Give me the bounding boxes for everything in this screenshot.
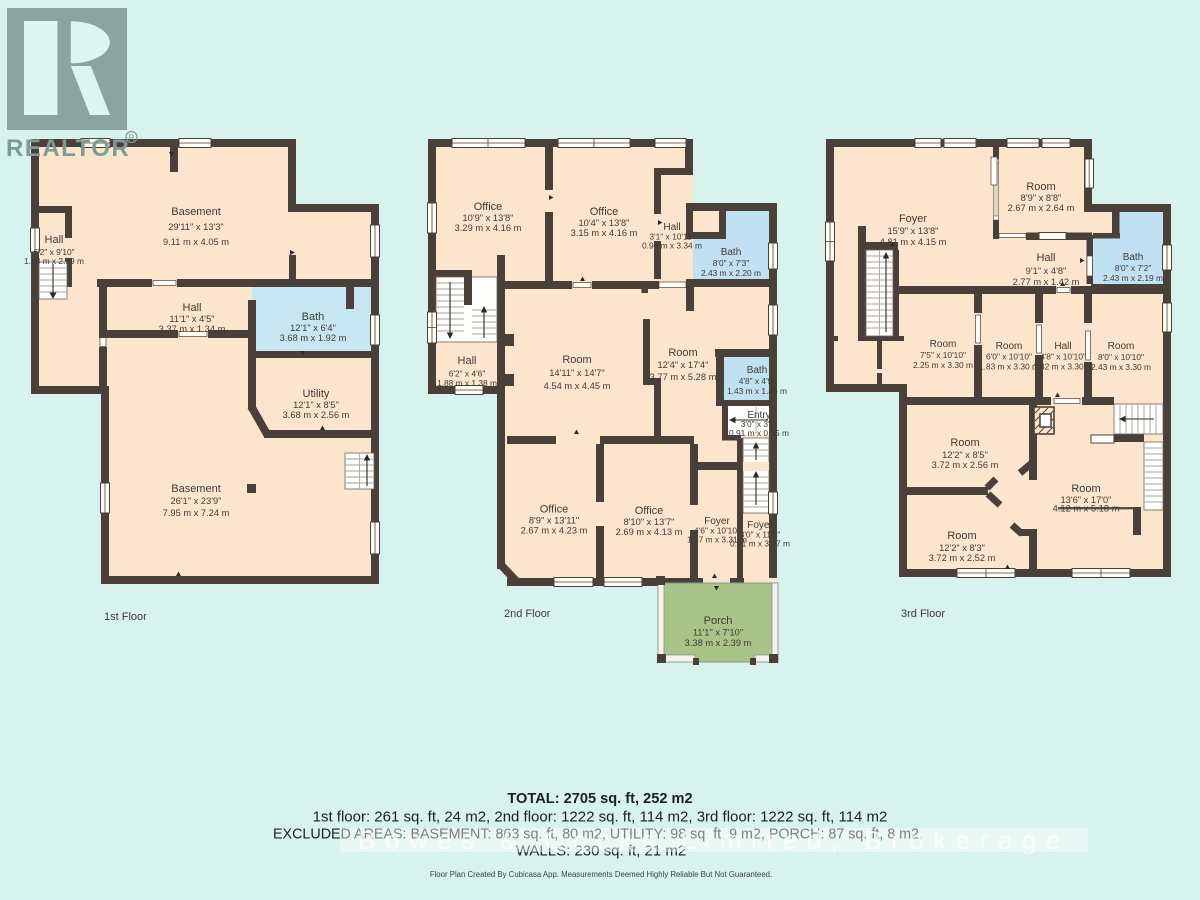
svg-text:Office: Office xyxy=(590,206,619,218)
svg-text:3.72 m x 2.52 m: 3.72 m x 2.52 m xyxy=(929,553,996,563)
svg-text:3.72 m x 2.56 m: 3.72 m x 2.56 m xyxy=(932,460,999,470)
svg-text:Bath: Bath xyxy=(302,311,325,323)
svg-text:Room: Room xyxy=(950,437,979,449)
svg-text:3.37 m x 1.34 m: 3.37 m x 1.34 m xyxy=(159,324,226,334)
svg-text:3rd Floor: 3rd Floor xyxy=(901,608,945,620)
svg-text:2.43 m x 2.20 m: 2.43 m x 2.20 m xyxy=(701,268,761,278)
svg-text:2.77 m x 1.42 m: 2.77 m x 1.42 m xyxy=(1013,277,1080,287)
svg-text:2.25 m x 3.30 m: 2.25 m x 3.30 m xyxy=(913,360,973,370)
svg-text:12'2" x 8'5": 12'2" x 8'5" xyxy=(942,450,988,460)
svg-text:2.67 m x 4.23 m: 2.67 m x 4.23 m xyxy=(521,526,588,536)
svg-text:12'4" x 17'4": 12'4" x 17'4" xyxy=(658,360,709,370)
svg-text:Room: Room xyxy=(1026,181,1055,193)
svg-text:0.91 m x 0.95 m: 0.91 m x 0.95 m xyxy=(729,428,789,438)
svg-text:8'0" x 7'2": 8'0" x 7'2" xyxy=(1115,263,1152,273)
svg-text:Office: Office xyxy=(540,504,569,516)
svg-text:11'1" x 4'5": 11'1" x 4'5" xyxy=(169,314,214,324)
svg-text:Room: Room xyxy=(947,530,976,542)
svg-text:2.43 m x 2.19 m: 2.43 m x 2.19 m xyxy=(1103,273,1163,283)
svg-text:Bowes & Cocks Limited, Brokera: Bowes & Cocks Limited, Brokerage xyxy=(358,825,1070,855)
svg-text:11'1" x 7'10": 11'1" x 7'10" xyxy=(693,628,743,638)
svg-text:Hall: Hall xyxy=(458,355,477,367)
svg-text:Floor Plan Created By Cubicasa: Floor Plan Created By Cubicasa App. Meas… xyxy=(430,870,772,879)
svg-text:Office: Office xyxy=(635,505,664,517)
svg-text:7'5" x 10'10": 7'5" x 10'10" xyxy=(920,350,966,360)
svg-text:1st floor: 261 sq. ft, 24 m2,: 1st floor: 261 sq. ft, 24 m2, 2nd floor:… xyxy=(313,809,888,826)
svg-text:4.12 m x 5.18 m: 4.12 m x 5.18 m xyxy=(1053,504,1120,514)
svg-text:3.15 m x 4.16 m: 3.15 m x 4.16 m xyxy=(571,228,638,238)
svg-text:1.88 m x 2.99 m: 1.88 m x 2.99 m xyxy=(24,256,84,266)
svg-text:Room: Room xyxy=(562,354,591,366)
svg-text:10'4" x 13'8": 10'4" x 13'8" xyxy=(579,218,630,228)
svg-text:8'10" x 13'7": 8'10" x 13'7" xyxy=(624,517,675,527)
svg-text:9'1" x 4'8": 9'1" x 4'8" xyxy=(1026,266,1067,276)
svg-text:Room: Room xyxy=(1108,341,1135,352)
svg-text:2.43 m x 3.30 m: 2.43 m x 3.30 m xyxy=(1091,362,1151,372)
svg-text:14'11" x 14'7": 14'11" x 14'7" xyxy=(549,368,604,378)
svg-text:1.88 m x 1.38 m: 1.88 m x 1.38 m xyxy=(437,378,497,388)
svg-text:2nd Floor: 2nd Floor xyxy=(504,608,551,620)
svg-text:R: R xyxy=(129,134,135,143)
svg-text:3.29 m x 4.16 m: 3.29 m x 4.16 m xyxy=(455,223,522,233)
svg-text:4.81 m x 4.15 m: 4.81 m x 4.15 m xyxy=(880,237,947,247)
svg-text:Basement: Basement xyxy=(171,206,221,218)
svg-text:12'1" x 6'4": 12'1" x 6'4" xyxy=(290,323,336,333)
svg-text:4'8" x 4'9": 4'8" x 4'9" xyxy=(739,376,776,386)
svg-text:8'0" x 10'10": 8'0" x 10'10" xyxy=(1098,352,1144,362)
svg-text:TOTAL: 2705 sq. ft, 252 m2: TOTAL: 2705 sq. ft, 252 m2 xyxy=(507,791,692,807)
svg-text:Porch: Porch xyxy=(704,615,733,627)
svg-text:8'9" x 8'8": 8'9" x 8'8" xyxy=(1021,193,1062,203)
svg-text:2.67 m x 2.64 m: 2.67 m x 2.64 m xyxy=(1008,203,1075,213)
svg-text:Utility: Utility xyxy=(303,388,330,400)
svg-text:Office: Office xyxy=(474,201,503,213)
svg-text:9.11 m x 4.05 m: 9.11 m x 4.05 m xyxy=(163,237,229,247)
svg-text:1.43 m x 1.46 m: 1.43 m x 1.46 m xyxy=(727,386,787,396)
svg-text:1st Floor: 1st Floor xyxy=(104,611,147,623)
svg-text:0.91 m x 3.47 m: 0.91 m x 3.47 m xyxy=(730,539,790,549)
svg-text:1.83 m x 3.30 m: 1.83 m x 3.30 m xyxy=(979,362,1039,372)
svg-text:Hall: Hall xyxy=(183,302,202,314)
svg-text:3.68 m x 1.92 m: 3.68 m x 1.92 m xyxy=(280,333,347,343)
svg-text:3.68 m x 2.56 m: 3.68 m x 2.56 m xyxy=(283,410,350,420)
svg-text:8'0" x 7'3": 8'0" x 7'3" xyxy=(713,258,750,268)
svg-text:REALTOR: REALTOR xyxy=(6,135,130,162)
svg-text:10'9" x 13'8": 10'9" x 13'8" xyxy=(463,213,514,223)
svg-text:Room: Room xyxy=(1071,483,1100,495)
svg-text:2.69 m x 4.13 m: 2.69 m x 4.13 m xyxy=(616,527,683,537)
svg-text:3.38 m x 2.39 m: 3.38 m x 2.39 m xyxy=(685,638,752,648)
svg-text:4'8" x 10'10": 4'8" x 10'10" xyxy=(1040,352,1086,362)
svg-text:Bath: Bath xyxy=(1123,252,1144,263)
svg-text:26'1" x 23'9": 26'1" x 23'9" xyxy=(171,496,222,506)
svg-text:7.95 m x 7.24 m: 7.95 m x 7.24 m xyxy=(163,508,230,518)
svg-text:Hall: Hall xyxy=(45,234,64,246)
svg-text:Bath: Bath xyxy=(747,365,768,376)
svg-text:0.94 m x 3.34 m: 0.94 m x 3.34 m xyxy=(642,241,702,251)
svg-text:15'9" x 13'8": 15'9" x 13'8" xyxy=(888,226,939,236)
svg-text:4.54 m x 4.45 m: 4.54 m x 4.45 m xyxy=(544,381,611,391)
svg-text:6'2" x 4'6": 6'2" x 4'6" xyxy=(449,369,486,379)
svg-text:3.77 m x 5.28 m: 3.77 m x 5.28 m xyxy=(650,372,717,382)
svg-text:Room: Room xyxy=(930,339,957,350)
svg-text:Basement: Basement xyxy=(171,483,221,495)
svg-text:Hall: Hall xyxy=(1054,341,1071,352)
svg-text:Room: Room xyxy=(996,341,1023,352)
svg-text:8'9" x 13'11": 8'9" x 13'11" xyxy=(529,516,579,526)
svg-text:29'11" x 13'3": 29'11" x 13'3" xyxy=(168,222,223,232)
svg-text:6'0" x 10'10": 6'0" x 10'10" xyxy=(986,352,1032,362)
svg-text:1.42 m x 3.30 m: 1.42 m x 3.30 m xyxy=(1033,362,1093,372)
svg-text:Room: Room xyxy=(668,347,697,359)
svg-text:12'1" x 8'5": 12'1" x 8'5" xyxy=(293,400,339,410)
svg-text:12'2" x 8'3": 12'2" x 8'3" xyxy=(939,543,985,553)
svg-text:Foyer: Foyer xyxy=(899,213,927,225)
svg-text:Bath: Bath xyxy=(721,247,742,258)
svg-text:Hall: Hall xyxy=(1037,252,1056,264)
